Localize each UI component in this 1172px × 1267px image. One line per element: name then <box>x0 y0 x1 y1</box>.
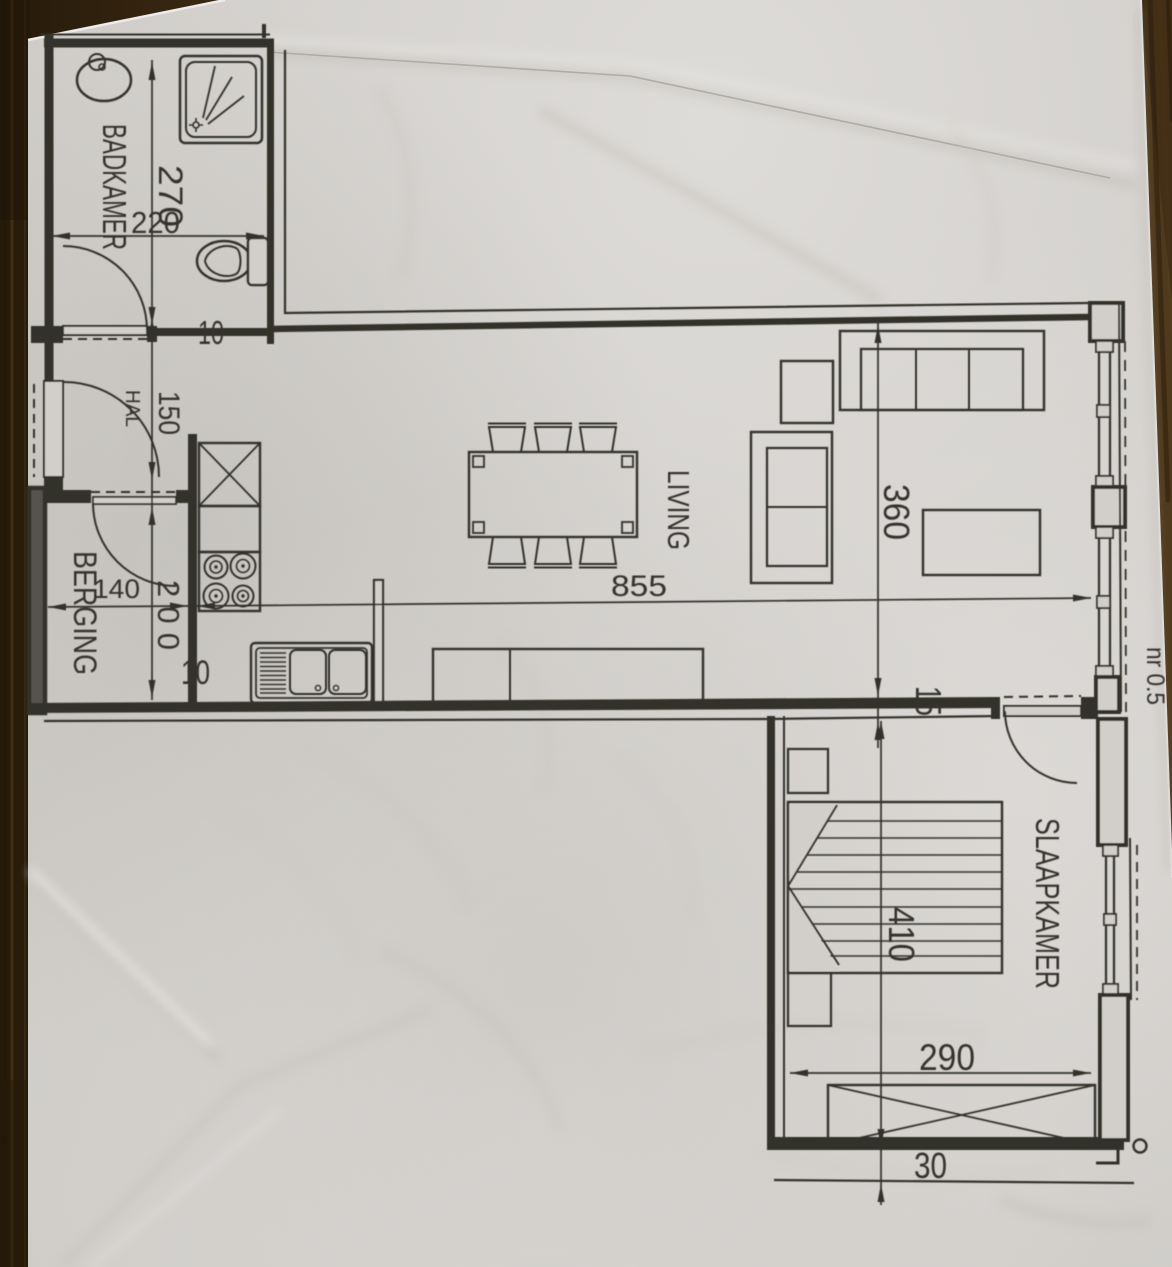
svg-text:30: 30 <box>914 1145 947 1186</box>
svg-text:410: 410 <box>881 907 922 962</box>
svg-text:855: 855 <box>611 570 667 603</box>
svg-text:BERGING: BERGING <box>67 551 103 675</box>
svg-text:10: 10 <box>198 314 224 351</box>
svg-text:360: 360 <box>876 484 917 540</box>
svg-text:BADKAMER: BADKAMER <box>96 124 133 250</box>
svg-text:nr 0.5: nr 0.5 <box>1141 647 1169 705</box>
svg-text:15: 15 <box>908 686 949 716</box>
svg-text:150: 150 <box>152 391 185 435</box>
svg-text:200: 200 <box>151 580 186 656</box>
svg-text:HAL: HAL <box>121 390 143 427</box>
svg-text:SLAAPKAMER: SLAAPKAMER <box>1029 818 1066 989</box>
svg-text:140: 140 <box>93 574 140 604</box>
svg-text:10: 10 <box>181 654 210 692</box>
svg-text:290: 290 <box>919 1037 975 1078</box>
svg-text:LIVING: LIVING <box>661 470 696 550</box>
svg-text:220: 220 <box>131 205 180 240</box>
